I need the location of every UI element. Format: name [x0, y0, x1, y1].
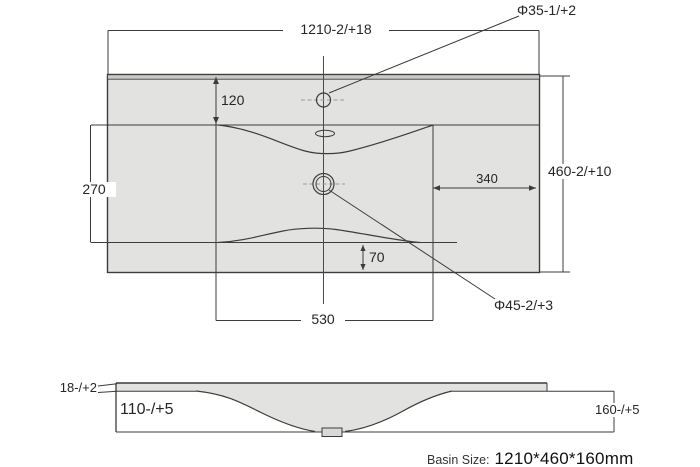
- basin-opening-depth-dimension-label: 270: [72, 182, 116, 197]
- top-view: [91, 16, 571, 321]
- drawing-canvas: [0, 0, 700, 467]
- drain-stub: [322, 428, 342, 437]
- total-height-dimension-label: 160-/+5: [592, 403, 642, 417]
- drain-hole-diameter-label: Φ45-2/+3: [494, 298, 553, 313]
- side-view: [98, 383, 614, 437]
- deck-thickness-dimension-label: 18-/+2: [50, 381, 97, 395]
- side-margin-dimension-label: 340: [468, 172, 506, 186]
- basin-size-caption-value: 1210*460*160mm: [495, 449, 634, 467]
- overall-width-dimension-label: 1210-2/+18: [283, 22, 389, 37]
- basin-opening-width-dimension-label: 530: [301, 312, 345, 327]
- under-clearance-dimension-label: 110-/+5: [120, 401, 174, 419]
- overall-depth-dimension-label: 460-2/+10: [545, 164, 614, 179]
- dim-tick-18-top: [98, 384, 117, 386]
- dim-tick-18-bottom: [98, 391, 117, 392]
- side-deck-fill: [116, 383, 547, 391]
- basin-technical-drawing: 1210-2/+18 Φ35-1/+2 120 270 340 460-2/+1…: [0, 0, 700, 467]
- basin-size-caption: Basin Size: 1210*460*160mm: [427, 449, 633, 467]
- rim-offset-bottom-dimension-label: 70: [369, 250, 385, 265]
- basin-size-caption-label: Basin Size:: [427, 453, 490, 467]
- bowl-section-fill: [196, 391, 452, 432]
- faucet-hole-diameter-label: Φ35-1/+2: [517, 3, 576, 18]
- rim-offset-top-dimension-label: 120: [221, 93, 244, 108]
